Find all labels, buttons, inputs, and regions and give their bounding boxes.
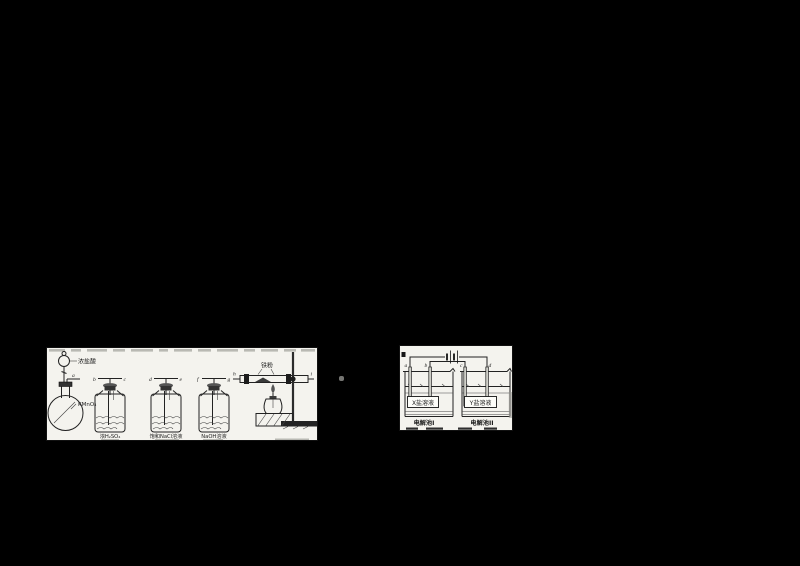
- iron-powder: [255, 378, 271, 383]
- scan-edge-smudge: [509, 392, 512, 418]
- bottle-2-label: 饱和NaCl溶液: [150, 432, 183, 440]
- funnel-label: 浓盐酸: [78, 358, 96, 366]
- port-d: d: [149, 377, 152, 383]
- port-g: g: [228, 377, 231, 383]
- cell1-solution-label: X盐溶液: [412, 399, 434, 407]
- gas-apparatus-drawing: 浓盐酸 KMnO₄ a: [47, 348, 317, 440]
- flask-label: KMnO₄: [78, 402, 97, 408]
- port-i: i: [311, 372, 313, 378]
- figure-electrolysis-cells: a b c d X盐溶液 电解池I: [400, 346, 512, 430]
- flame-icon: [271, 384, 275, 393]
- scan-text-remnants-top: [49, 349, 315, 352]
- wash-bottle-1: [95, 379, 125, 433]
- bottle-3-label: NaOH溶液: [201, 432, 226, 440]
- port-e: e: [180, 377, 183, 383]
- iron-stand: [281, 352, 317, 429]
- electrode-c-label: c: [460, 363, 463, 369]
- electrode-d-label: d: [489, 363, 492, 369]
- clamp-knob-right: [286, 374, 291, 384]
- bottle-1-label: 浓H₂SO₄: [100, 432, 121, 440]
- figure-gas-apparatus: 浓盐酸 KMnO₄ a: [47, 348, 317, 440]
- electrolysis-drawing: a b c d X盐溶液 电解池I: [400, 346, 512, 430]
- cell2-solution-label: Y盐溶液: [469, 399, 492, 407]
- port-b: b: [93, 377, 96, 383]
- scan-text-remnants-bottom: [406, 428, 497, 430]
- cell2-label: 电解池II: [470, 419, 493, 427]
- hard-glass-tube: [233, 369, 314, 384]
- clamp-knob-left: [244, 374, 249, 384]
- port-a: a: [72, 373, 75, 379]
- electrode-a-label: a: [405, 363, 408, 369]
- alcohol-lamp: [264, 384, 282, 414]
- wash-bottle-3: [199, 379, 229, 433]
- beaker-cell-2: [460, 367, 512, 417]
- electrode-b-label: b: [425, 363, 428, 369]
- cell1-label: 电解池I: [414, 419, 435, 427]
- circuit-wires: [410, 357, 487, 368]
- wash-bottle-2: [151, 379, 181, 433]
- scan-artifact-square: [402, 352, 406, 357]
- port-h: h: [233, 372, 236, 378]
- scanned-page: 浓盐酸 KMnO₄ a: [0, 0, 800, 566]
- tube-label: 铁粉: [261, 362, 273, 370]
- scan-artifact-speck: [339, 376, 344, 381]
- beaker-cell-1: [403, 367, 455, 417]
- port-c: c: [124, 377, 127, 383]
- port-f: f: [197, 376, 200, 383]
